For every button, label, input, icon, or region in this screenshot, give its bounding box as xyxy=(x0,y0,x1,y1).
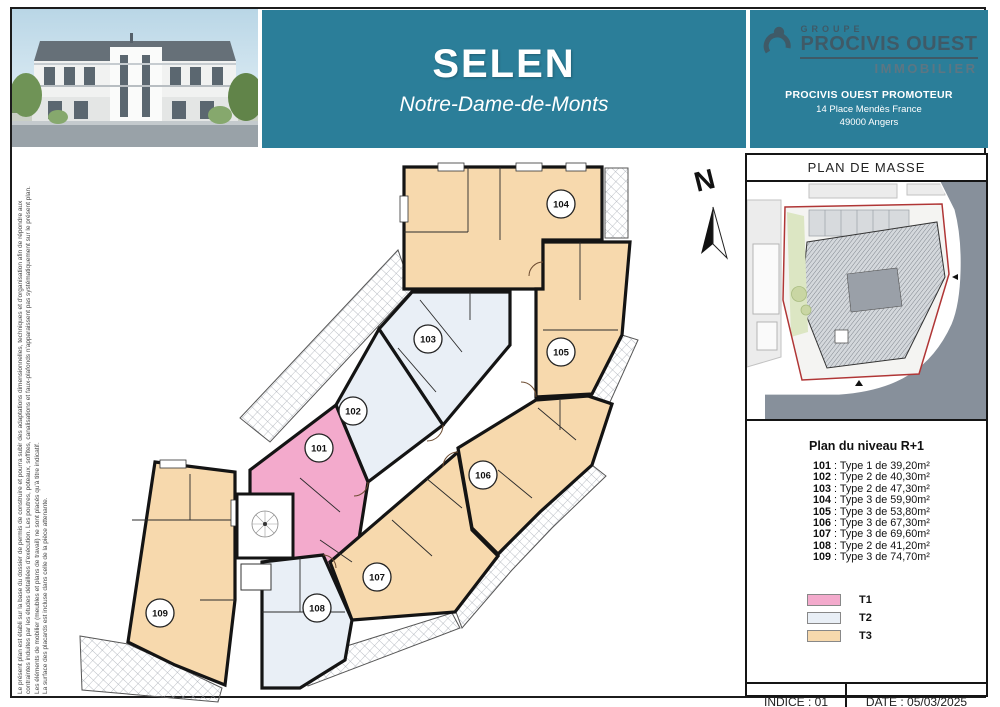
unit-badge-108: 108 xyxy=(303,594,331,622)
unit-badge-102: 102 xyxy=(339,397,367,425)
apartment-units xyxy=(128,167,630,688)
unit-badge-101: 101 xyxy=(305,434,333,462)
level-summary: Plan du niveau R+1 101 : Type 1 de 39,20… xyxy=(747,439,986,684)
masse-map-graphic xyxy=(747,182,986,419)
unit-badge-106: 106 xyxy=(469,461,497,489)
apartment-list: 101 : Type 1 de 39,20m² 102 : Type 2 de … xyxy=(813,461,986,564)
svg-text:101: 101 xyxy=(311,444,328,455)
unit-badge-103: 103 xyxy=(414,325,442,353)
svg-text:105: 105 xyxy=(553,348,570,359)
north-label: N xyxy=(691,163,718,198)
masse-map xyxy=(747,182,986,421)
svg-text:107: 107 xyxy=(369,573,385,584)
legend-row-t2: T2 xyxy=(807,609,872,627)
unit-badge-107: 107 xyxy=(363,563,391,591)
lift-shaft xyxy=(241,564,271,590)
plan-document: SELEN Notre-Dame-de-Monts GROUPE PROCIVI… xyxy=(0,0,1000,707)
svg-text:109: 109 xyxy=(152,609,168,620)
north-arrow: N xyxy=(691,163,727,258)
unit-badge-104: 104 xyxy=(547,190,575,218)
indice-cell: INDICE : 01 xyxy=(747,684,847,707)
legend-swatch-t1 xyxy=(807,594,841,606)
title-block-footer: INDICE : 01 DATE : 05/03/2025 xyxy=(747,684,986,707)
side-panel: PLAN DE MASSE xyxy=(745,153,988,697)
date-cell: DATE : 05/03/2025 xyxy=(847,684,986,707)
unit-109-area xyxy=(128,462,235,685)
svg-text:108: 108 xyxy=(309,604,325,615)
type-legend: T1 T2 T3 xyxy=(807,591,872,645)
svg-text:104: 104 xyxy=(553,200,570,211)
level-title: Plan du niveau R+1 xyxy=(747,439,986,453)
svg-text:106: 106 xyxy=(475,471,491,482)
svg-text:103: 103 xyxy=(420,335,436,346)
unit-badge-109: 109 xyxy=(146,599,174,627)
masse-title: PLAN DE MASSE xyxy=(747,155,986,182)
legend-row-t1: T1 xyxy=(807,591,872,609)
legend-swatch-t2 xyxy=(807,612,841,624)
unit-badge-105: 105 xyxy=(547,338,575,366)
apartment-row-109: 109 : Type 3 de 74,70m² xyxy=(813,552,986,563)
balcony-top-right xyxy=(605,168,628,238)
legend-swatch-t3 xyxy=(807,630,841,642)
legend-row-t3: T3 xyxy=(807,627,872,645)
svg-text:102: 102 xyxy=(345,407,361,418)
